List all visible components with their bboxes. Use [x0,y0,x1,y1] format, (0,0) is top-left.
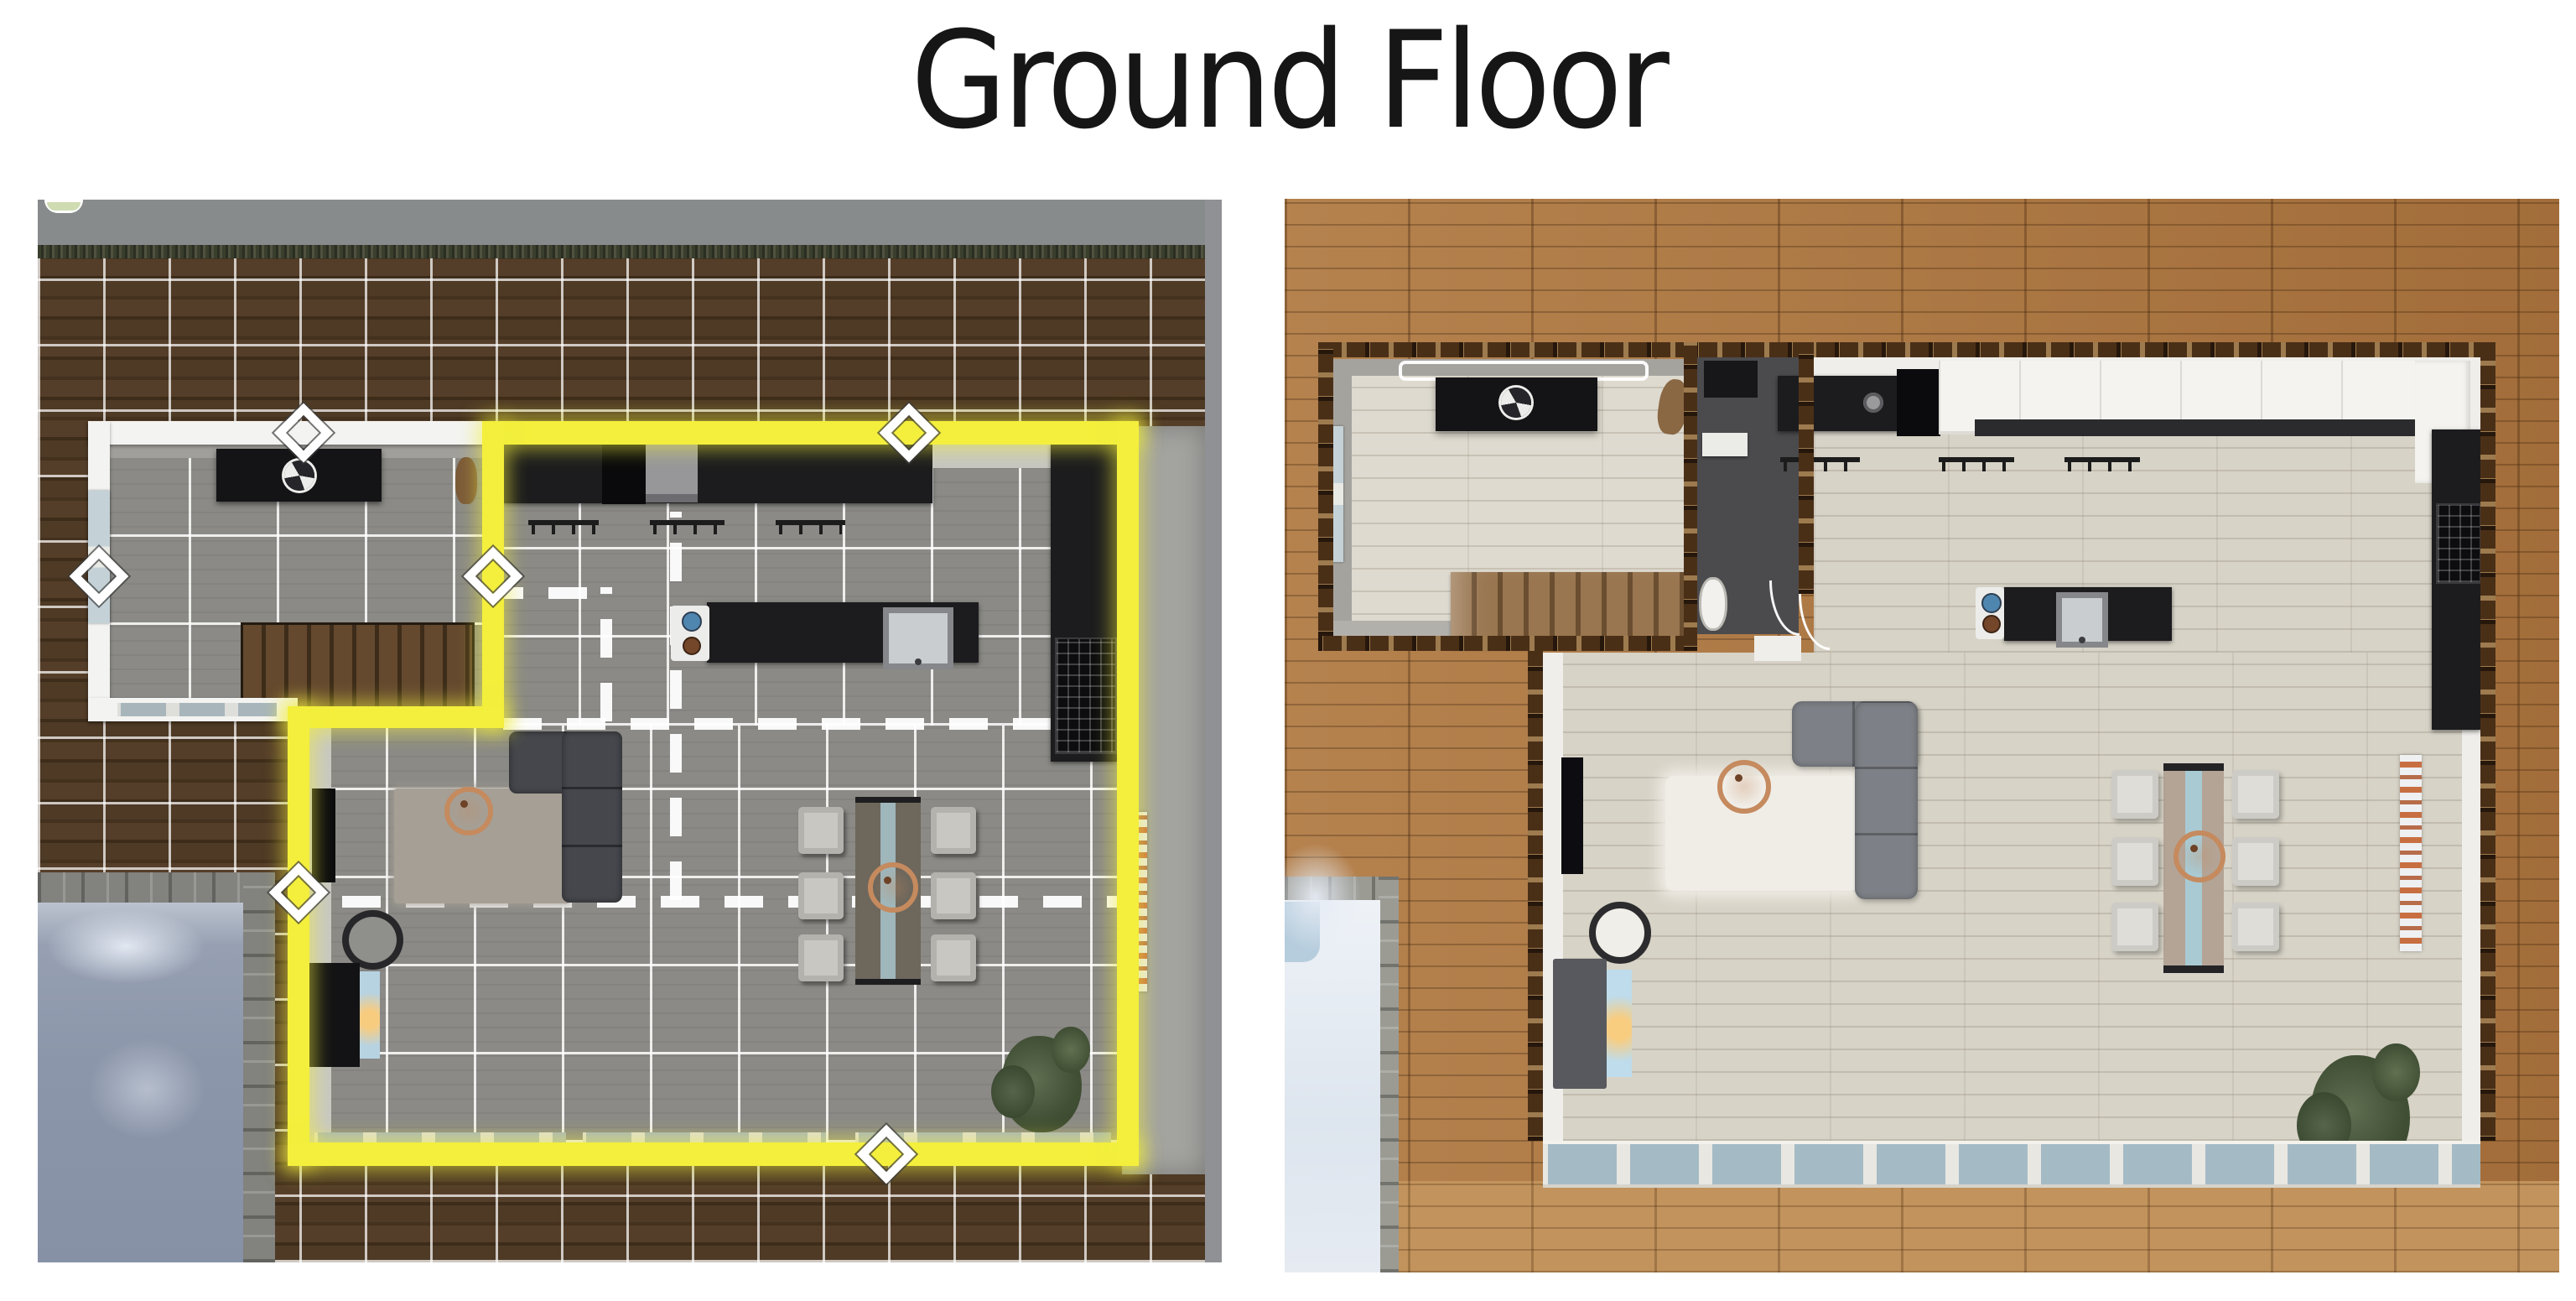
copper-chandelier [2173,830,2225,882]
wood-deck-lower [1285,1181,2559,1272]
framed-wall-bath-east [1799,342,1814,594]
framed-wall-living-west [1528,651,1543,1141]
dining-chair [2232,770,2279,819]
dining-chair [2111,903,2158,951]
dining-chair [2111,837,2158,886]
room-divider-dashed[interactable] [600,587,612,721]
pool-snow-patch [46,908,205,984]
room-divider-dashed[interactable] [503,718,1117,730]
base-counter-edge [1975,419,2432,436]
floor-pouf[interactable] [342,910,403,970]
dining-chair [2111,770,2158,819]
stove[interactable] [1055,637,1117,754]
ceiling-fan-icon [284,461,314,491]
room-divider-dashed[interactable] [670,512,682,900]
wall-tv[interactable] [312,788,335,882]
copper-chandelier[interactable] [868,862,918,913]
dining-chair[interactable] [798,807,844,854]
selected-wall-south[interactable] [288,1142,1139,1166]
copper-decor [1717,760,1771,814]
tablet-on-floor[interactable] [671,606,709,661]
range-hood[interactable] [646,444,698,502]
dining-chair [2232,837,2279,886]
selected-wall-west[interactable] [288,706,309,1164]
door-column [1754,636,1801,661]
ceiling-fan-icon [1501,388,1531,418]
cooktop-knob-icon [1863,393,1883,413]
wall-rail [1780,457,1860,462]
window-sill [117,703,277,716]
tablet-on-floor [1976,587,2004,639]
framed-wall-entry-south [1318,636,1697,651]
selected-wall-north[interactable] [503,421,1139,445]
window-sill [314,1132,566,1142]
concrete-strip [1205,200,1222,1262]
bathroom-sink-shelf [1702,433,1748,456]
lawn-strip [38,200,1222,247]
wall-rail[interactable] [776,520,845,525]
build-mode-floor-plan [38,200,1222,1262]
copper-decor[interactable] [444,787,493,835]
framed-wall-west [1318,342,1333,636]
floor-pouf [1589,902,1651,964]
potted-plant[interactable] [1002,1036,1082,1132]
pool-coping[interactable] [243,872,275,1262]
snow-spill [1285,843,1362,952]
toilet [1699,577,1727,631]
kitchen-sink[interactable] [883,607,953,669]
dining-chair [2232,903,2279,951]
sectional-sofa-side[interactable] [562,731,622,903]
fireplace-flame-icon [1607,970,1632,1077]
framed-wall-entry-east [1684,342,1697,651]
ground-floor-collage: Ground Floor [0,0,2576,1301]
dining-chair[interactable] [931,934,976,981]
fireplace [1553,959,1607,1089]
wall-tv [1561,757,1583,874]
pool-coping[interactable] [38,872,275,903]
pet-cat[interactable] [455,457,477,504]
pool-coping [1379,877,1399,1272]
dining-chair[interactable] [931,872,976,919]
kitchen-sink [2056,592,2108,648]
page-title: Ground Floor [0,3,2576,159]
sectional-sofa-side [1855,701,1918,899]
furnished-floor-plan [1285,199,2559,1272]
stove [2436,503,2481,584]
window-sill [583,1132,826,1142]
selected-wall-east[interactable] [1117,421,1139,1166]
window-row-south [1543,1141,2480,1188]
dining-chair[interactable] [931,807,976,854]
wall-rail[interactable] [650,520,724,525]
framed-wall-north [1318,342,2495,357]
selected-wall-connector[interactable] [288,706,504,728]
grass-fringe [38,245,1222,258]
fridge [1897,369,1940,436]
framed-wall-east [2480,342,2495,1141]
fridge[interactable] [602,440,646,504]
wall-rail[interactable] [528,520,599,525]
wall-rail [1939,457,2014,462]
pool-snow-patch [88,1038,205,1139]
fireplace-flame-icon [360,971,380,1059]
kitchen-counter-top[interactable] [503,443,932,503]
dining-chair[interactable] [798,934,844,981]
washer [1704,361,1758,398]
wall-art [2400,755,2422,951]
dining-chair[interactable] [798,872,844,919]
wall-rail [2064,457,2140,462]
